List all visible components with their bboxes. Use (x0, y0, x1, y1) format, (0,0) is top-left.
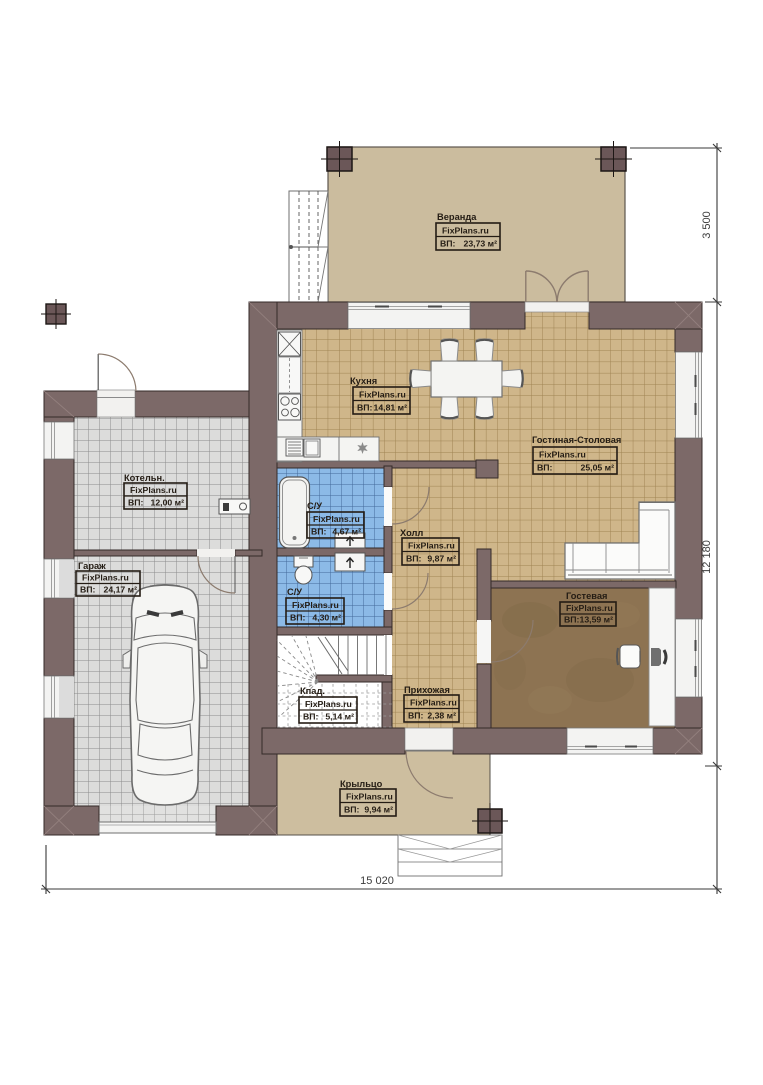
svg-text:ВП:: ВП: (128, 497, 144, 507)
svg-text:ВП:: ВП: (290, 612, 306, 622)
svg-text:ВП:: ВП: (344, 804, 360, 814)
svg-text:Веранда: Веранда (437, 212, 477, 222)
svg-text:FixPlans.ru: FixPlans.ru (539, 449, 586, 459)
svg-text:14,81 м²: 14,81 м² (374, 402, 408, 412)
svg-text:Котельн.: Котельн. (124, 473, 165, 483)
svg-text:FixPlans.ru: FixPlans.ru (292, 600, 339, 610)
svg-text:Прихожая: Прихожая (404, 685, 450, 695)
svg-text:С/У: С/У (287, 587, 302, 597)
svg-text:ВП:: ВП: (408, 710, 424, 720)
svg-text:FixPlans.ru: FixPlans.ru (442, 225, 489, 235)
svg-text:Гараж: Гараж (78, 561, 106, 571)
svg-text:FixPlans.ru: FixPlans.ru (408, 540, 455, 550)
svg-text:ВП:: ВП: (537, 462, 553, 472)
svg-text:12 180: 12 180 (701, 540, 713, 574)
svg-text:FixPlans.ru: FixPlans.ru (359, 389, 406, 399)
svg-text:FixPlans.ru: FixPlans.ru (410, 697, 457, 707)
svg-text:9,87 м²: 9,87 м² (427, 553, 456, 563)
svg-text:ВП:: ВП: (406, 553, 422, 563)
svg-text:15 020: 15 020 (360, 875, 394, 887)
svg-text:С/У: С/У (307, 501, 322, 511)
svg-text:2,38 м²: 2,38 м² (427, 710, 456, 720)
svg-text:Гостиная-Столовая: Гостиная-Столовая (532, 435, 621, 445)
svg-text:FixPlans.ru: FixPlans.ru (305, 699, 352, 709)
svg-text:Холл: Холл (400, 528, 423, 538)
svg-text:ВП:: ВП: (80, 584, 96, 594)
svg-text:5,14 м²: 5,14 м² (325, 711, 354, 721)
svg-text:Гостевая: Гостевая (566, 591, 607, 601)
svg-text:4,30 м²: 4,30 м² (312, 612, 341, 622)
svg-text:ВП:: ВП: (357, 402, 373, 412)
svg-text:13,59 м²: 13,59 м² (580, 614, 614, 624)
svg-text:FixPlans.ru: FixPlans.ru (313, 514, 360, 524)
svg-text:Кухня: Кухня (350, 376, 377, 386)
svg-text:9,94 м²: 9,94 м² (364, 804, 393, 814)
svg-text:Крыльцо: Крыльцо (340, 779, 383, 789)
svg-text:25,05 м²: 25,05 м² (581, 462, 615, 472)
svg-text:FixPlans.ru: FixPlans.ru (566, 603, 613, 613)
svg-text:FixPlans.ru: FixPlans.ru (346, 791, 393, 801)
svg-text:ВП:: ВП: (440, 238, 456, 248)
svg-text:23,73 м²: 23,73 м² (464, 238, 498, 248)
svg-text:4,67 м²: 4,67 м² (332, 526, 361, 536)
svg-text:Кпад.: Кпад. (300, 686, 325, 696)
svg-text:ВП:: ВП: (303, 711, 319, 721)
svg-text:12,00 м²: 12,00 м² (151, 497, 185, 507)
svg-text:ВП:: ВП: (564, 614, 580, 624)
svg-text:FixPlans.ru: FixPlans.ru (130, 485, 177, 495)
svg-text:FixPlans.ru: FixPlans.ru (82, 572, 129, 582)
svg-text:3 500: 3 500 (701, 211, 713, 239)
svg-text:ВП:: ВП: (311, 526, 327, 536)
svg-text:24,17 м²: 24,17 м² (104, 584, 138, 594)
